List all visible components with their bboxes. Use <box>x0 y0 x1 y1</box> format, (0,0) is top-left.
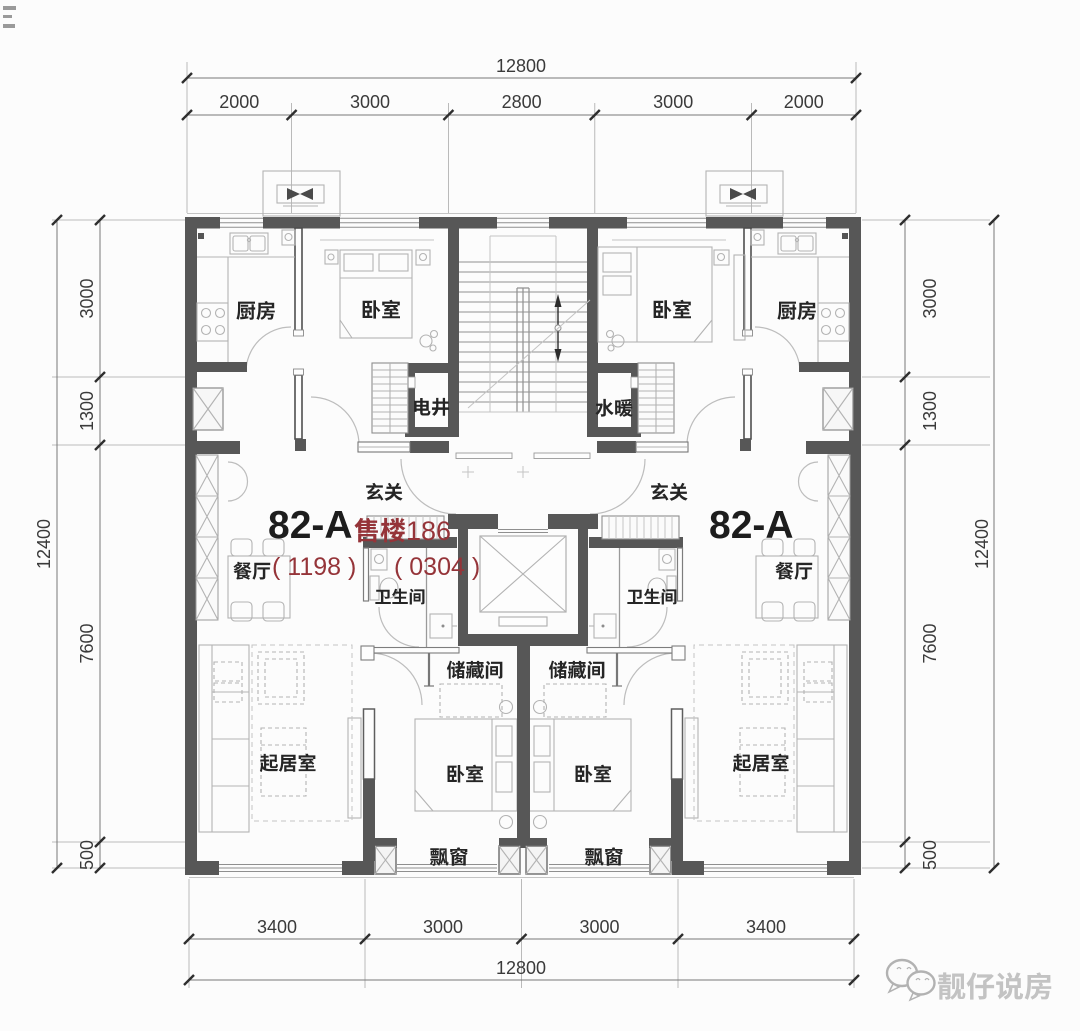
svg-text:( 1198 ): ( 1198 ) <box>272 553 356 581</box>
svg-text:12400: 12400 <box>972 519 992 569</box>
svg-text:500: 500 <box>920 840 940 870</box>
svg-text:3000: 3000 <box>920 278 940 318</box>
svg-text:12800: 12800 <box>496 958 546 978</box>
svg-text:1300: 1300 <box>920 391 940 431</box>
svg-text:3400: 3400 <box>746 917 786 937</box>
svg-text:2800: 2800 <box>502 92 542 112</box>
svg-text:3400: 3400 <box>257 917 297 937</box>
svg-text:186: 186 <box>406 516 451 546</box>
svg-text:12400: 12400 <box>34 519 54 569</box>
svg-text:3000: 3000 <box>423 917 463 937</box>
svg-text:2000: 2000 <box>219 92 259 112</box>
svg-text:7600: 7600 <box>920 623 940 663</box>
svg-text:3000: 3000 <box>350 92 390 112</box>
svg-text:( 0304 ): ( 0304 ) <box>394 553 480 581</box>
svg-text:500: 500 <box>77 840 97 870</box>
svg-text:1300: 1300 <box>77 391 97 431</box>
svg-text:3000: 3000 <box>653 92 693 112</box>
svg-text:3000: 3000 <box>77 278 97 318</box>
svg-text:82-A: 82-A <box>268 504 353 547</box>
svg-text:7600: 7600 <box>77 623 97 663</box>
svg-text:82-A: 82-A <box>709 504 794 547</box>
svg-text:3000: 3000 <box>579 917 619 937</box>
svg-text:12800: 12800 <box>496 56 546 76</box>
svg-text:2000: 2000 <box>784 92 824 112</box>
